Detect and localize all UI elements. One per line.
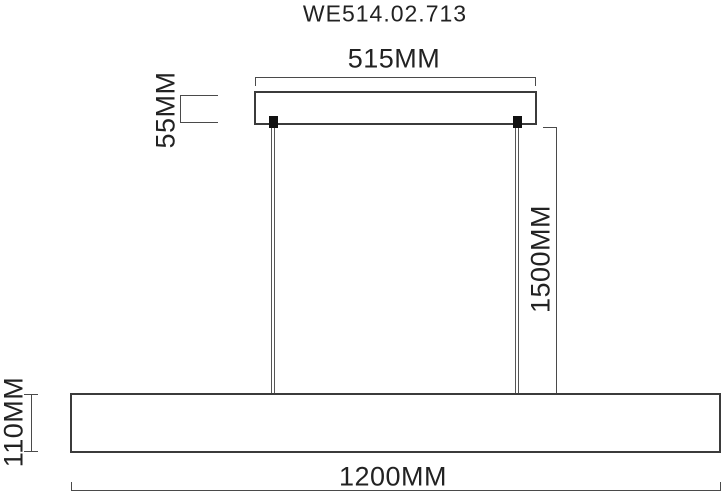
cable-mount-left — [269, 116, 278, 128]
dim-suspension-length-label: 1500MM — [526, 205, 557, 313]
dim-canopy-width-tick-left — [255, 77, 256, 86]
drawing-title: WE514.02.713 — [303, 1, 467, 28]
lamp-body-rect — [70, 393, 721, 453]
dim-body-width-tick-left — [71, 482, 72, 490]
dim-suspension-length-line — [556, 127, 557, 394]
dim-canopy-width-label: 515MM — [348, 44, 441, 75]
dim-body-height-tick-top — [24, 394, 38, 395]
dim-canopy-height-tick-top — [180, 95, 218, 96]
dim-canopy-width-line — [255, 77, 536, 78]
dim-body-width-tick-right — [720, 482, 721, 490]
dim-body-height-line — [31, 394, 32, 452]
cable-mount-right — [513, 116, 522, 128]
dim-canopy-height-tick-bottom — [180, 122, 218, 123]
dim-body-height-tick-bottom — [24, 451, 38, 452]
dim-canopy-width-tick-right — [535, 77, 536, 86]
dim-body-height-label: 110MM — [0, 377, 30, 468]
dim-canopy-height-line — [180, 95, 181, 123]
dim-body-width-line — [71, 490, 721, 491]
suspension-cable-right — [515, 128, 519, 394]
technical-drawing: WE514.02.713 515MM 55MM 1500MM 110MM 120… — [0, 0, 723, 500]
ceiling-canopy-rect — [254, 91, 537, 125]
dim-canopy-height-label: 55MM — [151, 71, 182, 148]
dim-body-width-label: 1200MM — [339, 462, 447, 493]
dim-suspension-length-tick-top — [543, 127, 557, 128]
suspension-cable-left — [271, 128, 275, 394]
